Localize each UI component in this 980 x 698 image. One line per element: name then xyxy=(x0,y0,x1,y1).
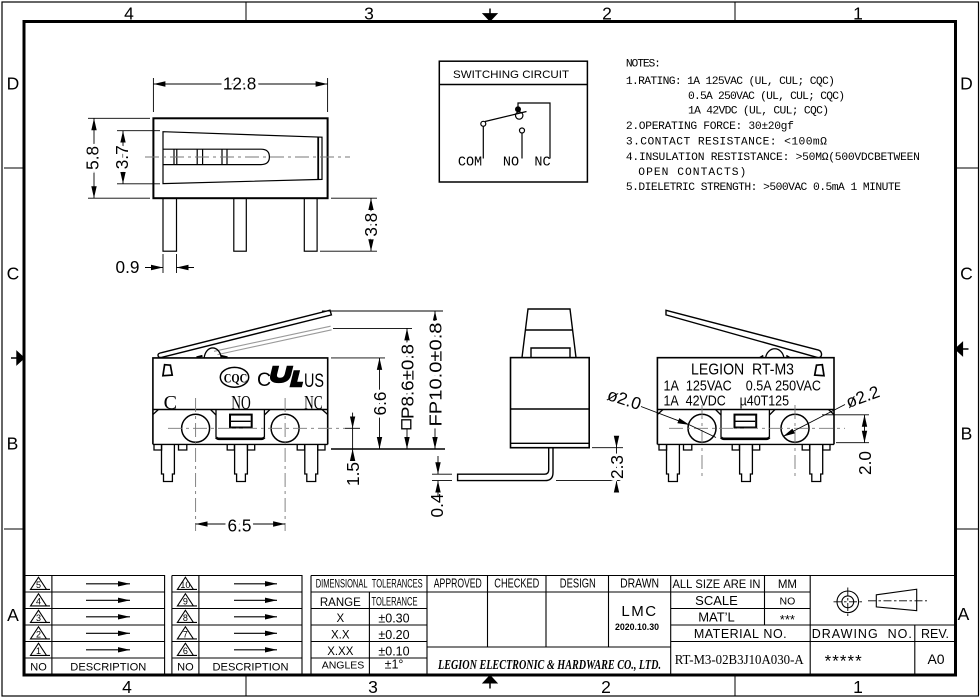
svg-text:1.5: 1.5 xyxy=(343,462,363,486)
svg-text:±0.30: ±0.30 xyxy=(378,611,409,625)
svg-text:1A 125VAC 0.5A 250VAC: 1A 125VAC 0.5A 250VAC xyxy=(664,379,822,395)
svg-text:2: 2 xyxy=(601,677,611,697)
svg-text:DESIGN: DESIGN xyxy=(560,577,596,591)
svg-text:6.6: 6.6 xyxy=(370,392,390,416)
svg-text:D: D xyxy=(960,74,973,94)
svg-text:4: 4 xyxy=(124,4,134,24)
svg-text:B: B xyxy=(961,424,973,444)
svg-text:4.INSULATION RESTISTANCE: >50M: 4.INSULATION RESTISTANCE: >50MΩ(500VDCBE… xyxy=(626,152,920,164)
svg-text:DESCRIPTION: DESCRIPTION xyxy=(70,661,146,673)
svg-text:2.3: 2.3 xyxy=(607,455,627,479)
svg-text:DRAWING NO.: DRAWING NO. xyxy=(812,627,913,641)
svg-text:NC: NC xyxy=(304,392,323,414)
svg-text:1A 42VDC (UL, CUL; CQC): 1A 42VDC (UL, CUL; CQC) xyxy=(688,106,829,118)
svg-text:C: C xyxy=(164,392,177,414)
svg-text:9: 9 xyxy=(183,597,188,607)
svg-text:A: A xyxy=(7,605,19,625)
svg-text:B: B xyxy=(7,434,19,454)
svg-text:A0: A0 xyxy=(927,651,944,667)
svg-text:8: 8 xyxy=(183,613,188,623)
svg-text:12.8: 12.8 xyxy=(223,74,256,94)
svg-text:DESCRIPTION: DESCRIPTION xyxy=(213,661,289,673)
svg-text:3: 3 xyxy=(36,613,41,623)
svg-text:1.RATING: 1A 125VAC (UL, CUL;: 1.RATING: 1A 125VAC (UL, CUL; CQC) xyxy=(626,76,835,88)
svg-text:REV.: REV. xyxy=(921,627,949,641)
svg-text:A: A xyxy=(958,604,970,624)
svg-text:2020.10.30: 2020.10.30 xyxy=(615,622,659,632)
svg-text:CQC: CQC xyxy=(224,372,248,386)
svg-text:US: US xyxy=(304,371,324,392)
svg-text:1: 1 xyxy=(853,677,863,697)
svg-text:4: 4 xyxy=(36,597,41,607)
svg-text:±0.20: ±0.20 xyxy=(378,628,409,642)
svg-text:NO: NO xyxy=(30,661,47,673)
svg-text:2: 2 xyxy=(36,630,41,640)
svg-text:C: C xyxy=(960,264,973,284)
svg-text:TOLERANCE: TOLERANCE xyxy=(372,597,418,609)
svg-text:LMC: LMC xyxy=(621,603,657,620)
svg-text:COM: COM xyxy=(458,155,482,170)
svg-text:LEGION ELECTRONIC & HARDWARE C: LEGION ELECTRONIC & HARDWARE CO., LTD. xyxy=(437,657,661,672)
svg-text:4: 4 xyxy=(122,677,132,697)
svg-text:3.CONTACT RESISTANCE: <100mΩ: 3.CONTACT RESISTANCE: <100mΩ xyxy=(626,137,827,149)
svg-text:SWITCHING CIRCUIT: SWITCHING CIRCUIT xyxy=(453,69,569,81)
svg-text:MM: MM xyxy=(778,579,797,591)
svg-text:D: D xyxy=(7,74,20,94)
svg-text:DRAWN: DRAWN xyxy=(620,577,659,591)
svg-text:C: C xyxy=(7,264,20,284)
svg-text:7: 7 xyxy=(183,630,188,640)
svg-text:MAT’L: MAT’L xyxy=(698,610,735,625)
svg-text:DIMENSIONAL TOLERANCES: DIMENSIONAL TOLERANCES xyxy=(316,577,423,591)
svg-text:NO: NO xyxy=(231,392,251,414)
svg-text:0.9: 0.9 xyxy=(116,257,140,277)
svg-text:5.8: 5.8 xyxy=(82,146,102,170)
svg-text:0.4: 0.4 xyxy=(427,493,447,517)
svg-text:***: *** xyxy=(780,612,795,627)
svg-text:X.XX: X.XX xyxy=(327,646,354,658)
svg-text:NOTES:: NOTES: xyxy=(626,59,661,71)
svg-text:CHECKED: CHECKED xyxy=(494,577,539,591)
svg-text:3.7: 3.7 xyxy=(112,145,132,169)
svg-text:3: 3 xyxy=(368,677,378,697)
svg-text:*****: ***** xyxy=(825,652,863,671)
svg-text:X: X xyxy=(336,613,344,625)
svg-text:±0.10: ±0.10 xyxy=(378,644,409,658)
svg-text:1: 1 xyxy=(36,646,41,656)
svg-text:RT-M3-02B3J10A030-A: RT-M3-02B3J10A030-A xyxy=(675,652,804,667)
svg-text:RANGE: RANGE xyxy=(320,597,361,609)
svg-text:NO: NO xyxy=(780,596,796,608)
svg-text:6.5: 6.5 xyxy=(228,515,252,535)
svg-text:LEGION RT-M3: LEGION RT-M3 xyxy=(691,362,794,379)
svg-text:OPEN CONTACTS): OPEN CONTACTS) xyxy=(638,167,746,179)
svg-text:6: 6 xyxy=(183,646,188,656)
svg-text:P8.6±0.8: P8.6±0.8 xyxy=(397,344,417,419)
svg-text:APPROVED: APPROVED xyxy=(434,577,482,591)
svg-text:SCALE: SCALE xyxy=(695,593,738,608)
svg-text:±1°: ±1° xyxy=(385,657,404,671)
svg-text:X.X: X.X xyxy=(331,629,350,641)
svg-text:NO: NO xyxy=(503,155,519,170)
svg-text:1: 1 xyxy=(853,4,863,24)
svg-text:FP10.0±0.8: FP10.0±0.8 xyxy=(425,323,445,427)
svg-text:ANGLES: ANGLES xyxy=(322,660,365,672)
svg-text:ø2.2: ø2.2 xyxy=(843,381,882,412)
svg-text:0.5A 250VAC (UL, CUL; CQC): 0.5A 250VAC (UL, CUL; CQC) xyxy=(688,91,845,103)
svg-text:3: 3 xyxy=(364,4,374,24)
svg-text:NC: NC xyxy=(534,155,550,170)
svg-text:2.OPERATING FORCE: 30±20gf: 2.OPERATING FORCE: 30±20gf xyxy=(626,121,794,133)
svg-text:2: 2 xyxy=(602,4,612,24)
svg-text:5.DIELETRIC STRENGTH: >500VAC: 5.DIELETRIC STRENGTH: >500VAC 0.5mA 1 MI… xyxy=(626,182,901,194)
svg-text:ALL SIZE ARE IN: ALL SIZE ARE IN xyxy=(673,579,761,591)
svg-text:C: C xyxy=(257,369,271,391)
svg-text:2.0: 2.0 xyxy=(855,451,875,475)
svg-text:10: 10 xyxy=(180,580,190,590)
svg-text:3.8: 3.8 xyxy=(361,213,381,237)
svg-text:NO: NO xyxy=(177,661,194,673)
svg-text:1A 42VDC µ40T125: 1A 42VDC µ40T125 xyxy=(664,394,790,410)
svg-text:5: 5 xyxy=(36,580,41,590)
svg-text:ø2.0: ø2.0 xyxy=(605,384,644,414)
svg-text:MATERIAL NO.: MATERIAL NO. xyxy=(694,627,787,641)
